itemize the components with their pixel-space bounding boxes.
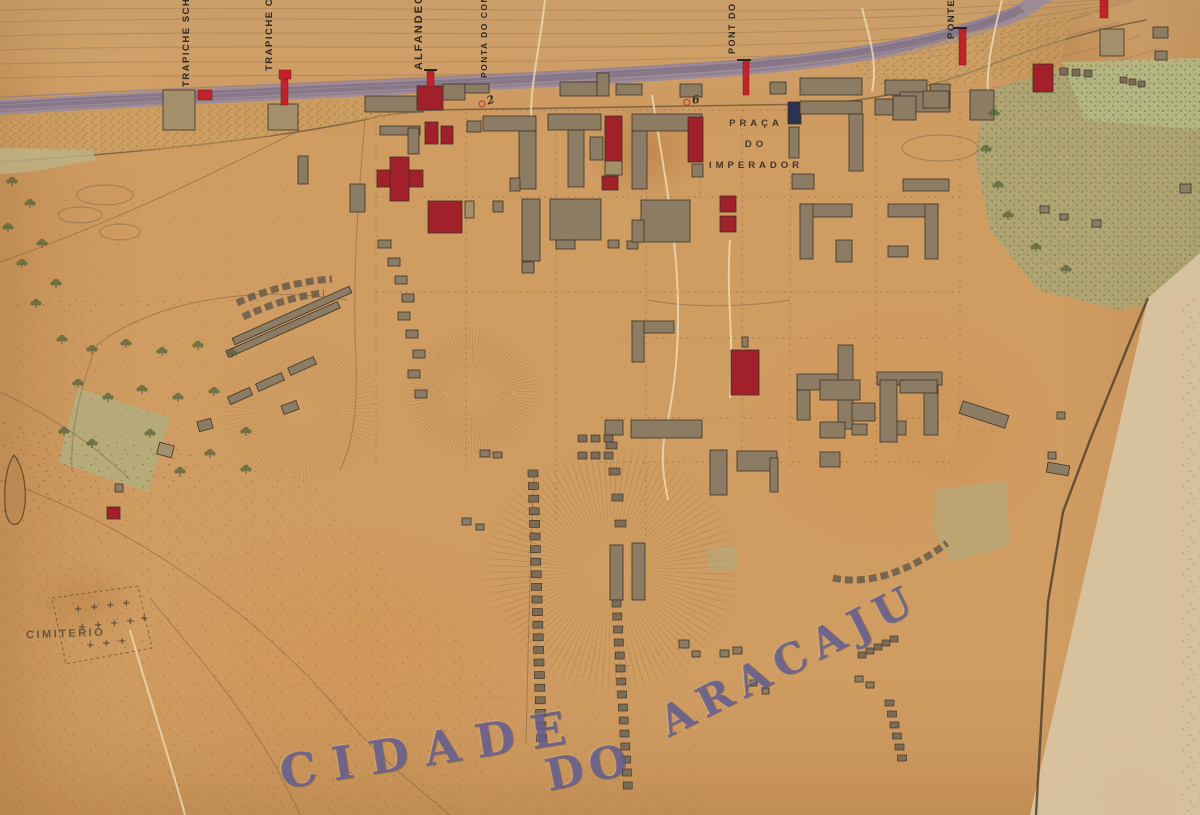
red-ring-icon bbox=[477, 99, 486, 108]
svg-text:+: + bbox=[102, 638, 110, 649]
label-trapiche-co: TRAPICHE CO bbox=[264, 0, 275, 71]
svg-text:+: + bbox=[86, 640, 94, 651]
map-canvas: ++++++++++++ TRAPICHE SCH TRAPICHE CO AL… bbox=[0, 0, 1200, 815]
svg-text:+: + bbox=[74, 604, 82, 615]
svg-text:+: + bbox=[140, 613, 148, 624]
map-graphics: ++++++++++++ bbox=[0, 0, 1200, 815]
red-ring-icon bbox=[683, 98, 691, 106]
label-ponta-do-con: PONTA DO CON bbox=[479, 0, 489, 78]
label-praca-do-imperador: PRAÇA DO IMPERADOR bbox=[704, 118, 808, 181]
svg-text:+: + bbox=[110, 618, 118, 629]
praca-line3: IMPERADOR bbox=[704, 160, 808, 171]
praca-line1: PRAÇA bbox=[704, 118, 808, 129]
street-grid-lines bbox=[376, 100, 965, 540]
praca-line2: DO bbox=[704, 139, 808, 150]
boundary-wedge bbox=[1030, 253, 1200, 815]
svg-text:+: + bbox=[122, 598, 130, 609]
svg-text:+: + bbox=[118, 636, 126, 647]
svg-text:+: + bbox=[106, 600, 114, 611]
label-alfandega: ALFANDEGA bbox=[413, 0, 425, 70]
label-trapiche-sch: TRAPICHE SCH bbox=[181, 0, 192, 87]
label-pont-do: PONT DO bbox=[727, 2, 737, 54]
label-ponte: PONTE bbox=[946, 0, 957, 39]
svg-text:+: + bbox=[126, 616, 134, 627]
svg-text:+: + bbox=[90, 602, 98, 613]
